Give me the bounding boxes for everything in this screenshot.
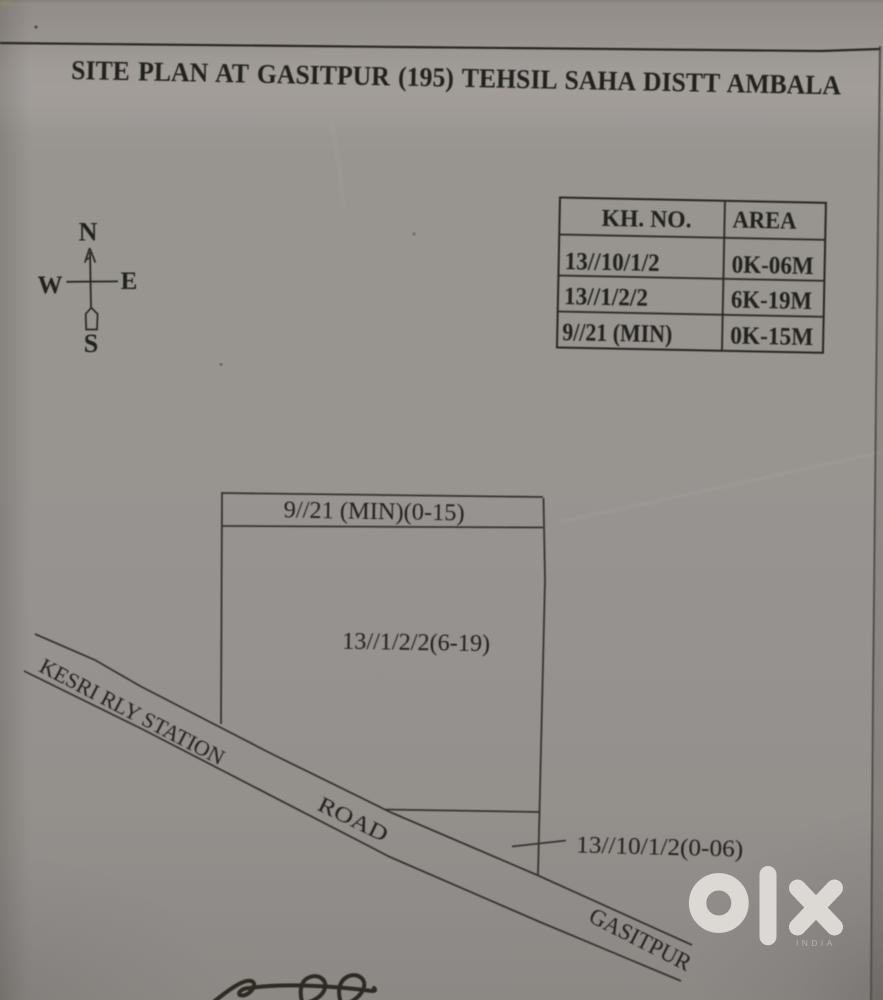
svg-text:13//1/2/2: 13//1/2/2 bbox=[564, 283, 649, 312]
svg-text:0K-06M: 0K-06M bbox=[731, 251, 814, 280]
svg-text:KH. NO.: KH. NO. bbox=[601, 206, 692, 234]
svg-text:AREA: AREA bbox=[732, 207, 797, 234]
svg-text:0K-15M: 0K-15M bbox=[730, 322, 814, 351]
svg-text:E: E bbox=[121, 268, 138, 295]
svg-text:13//10/1/2(0-06): 13//10/1/2(0-06) bbox=[576, 833, 744, 863]
svg-text:9//21 (MIN)(0-15): 9//21 (MIN)(0-15) bbox=[283, 497, 464, 526]
svg-text:S: S bbox=[84, 329, 98, 358]
svg-text:N: N bbox=[79, 218, 98, 247]
svg-text:6K-19M: 6K-19M bbox=[731, 286, 813, 315]
svg-text:13//1/2/2(6-19): 13//1/2/2(6-19) bbox=[342, 629, 490, 658]
svg-text:W: W bbox=[38, 272, 63, 299]
svg-text:13//10/1/2: 13//10/1/2 bbox=[564, 248, 660, 277]
svg-text:9//21 (MIN): 9//21 (MIN) bbox=[562, 319, 673, 348]
svg-text:INDIA: INDIA bbox=[796, 938, 836, 948]
